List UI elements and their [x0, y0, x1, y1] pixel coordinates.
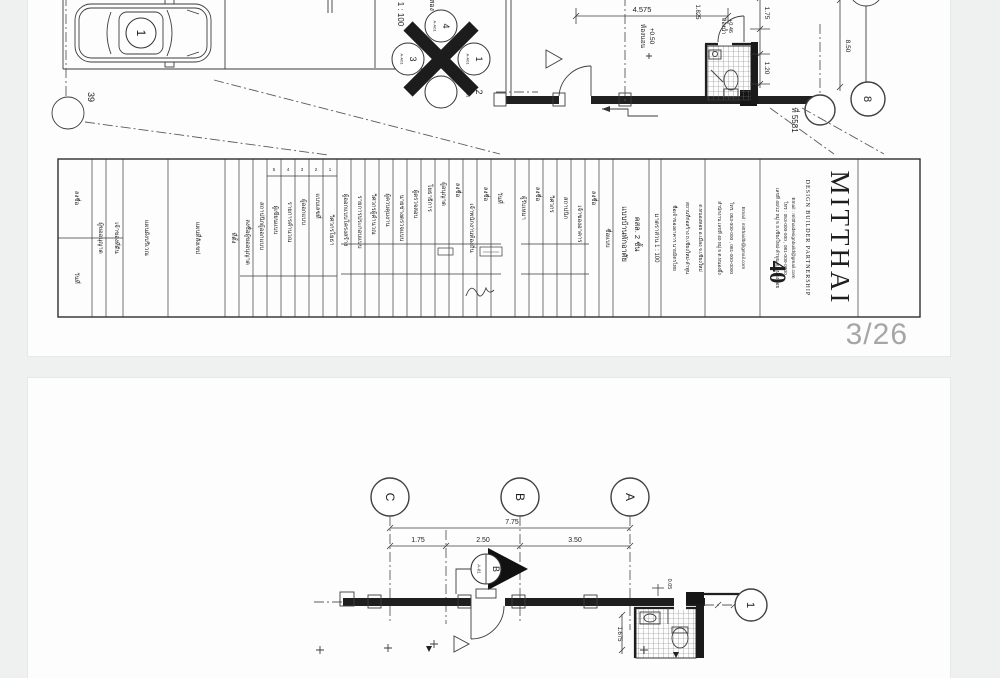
titleblock-column-label: ลงชื่อ: [534, 187, 542, 202]
grid-bubbles: 8 ที่ 5581: [770, 0, 885, 154]
bath-level: +0.46: [727, 19, 733, 33]
document-page-1[interactable]: 1 39 1 : 100 แปลนพื้นชั้นสอง 4: [28, 0, 950, 356]
floor-plan-upper: 4.575 ห้องนอน +0.50: [494, 0, 885, 154]
grid-bubble-c: C: [383, 493, 397, 502]
bath-label: ห้องน้ำ: [720, 18, 728, 34]
dim-seg3: 3.50: [568, 537, 582, 544]
titleblock-column-label: วิศวกร: [548, 195, 555, 214]
titleblock-column-label: นายช่างตรวจแบบ: [398, 195, 405, 242]
car-top-view: 1: [75, 0, 211, 67]
titleblock-column-label: ผู้ออกแบบโครงสร้าง: [342, 194, 350, 246]
grid-bubble-1: 1: [744, 602, 756, 608]
titleblock-column-label: ผู้รับเหมา: [520, 196, 527, 220]
titleblock-column-label: แผนที่สังเขป: [194, 222, 202, 254]
titleblock-column-label: ผู้ออกแบบ: [300, 199, 307, 225]
dim-right-2: 1.20: [763, 62, 770, 75]
compass-label-1: 1: [474, 56, 484, 61]
titleblock-column-label: รายการประกอบแบบ: [356, 195, 363, 248]
titleblock-column-label: วันที่: [496, 192, 504, 203]
titleblock-column-label: ลงชื่อผู้ขออนุญาต: [244, 219, 252, 265]
section-marker: A-01 B: [456, 548, 528, 594]
titleblock-column-label: เจ้าของอาคาร: [576, 205, 583, 243]
titleblock-column-label: โทร. 053-000-000 , 081-000-0000: [728, 202, 735, 274]
compass-ref: A-A01: [433, 20, 438, 32]
orientation-marker: 4 A-A01 1 A-A01 2 A-A01 3 A-A01: [392, 10, 490, 108]
compass-label-3: 3: [408, 56, 418, 61]
titleblock-column-label: วิศวกรโยธา: [328, 214, 336, 246]
titleblock-column-label: ชื่อเจ้าของอาคาร นายมิตรไทย: [671, 205, 678, 271]
titleblock-column-label: วันที่: [73, 272, 81, 283]
floor-plan-sheet-drawing: 1 39 1 : 100 แปลนพื้นชั้นสอง 4: [28, 0, 950, 356]
compass-ref: A-A01: [466, 53, 471, 65]
titleblock-column-label: แบบบ้านพักอาศัย: [620, 206, 629, 262]
mitthai-address: เลขที่ 40/12 หมู่ 5 ถ.เชียงใหม่-ลำพูน ต.…: [774, 188, 781, 288]
floor-plan-lower: 1.675 0.05 1: [314, 579, 767, 658]
dim-seg2: 2.50: [476, 537, 490, 544]
scale-note: 1 : 100: [396, 2, 405, 27]
titleblock-column-label: รายการคำนวณ: [286, 202, 293, 243]
titleblock-header-number: 3: [301, 167, 304, 172]
dim-total: 7.75: [505, 519, 519, 526]
titleblock-column-label: วิศวกรผู้คำนวณ: [370, 193, 377, 235]
titleblock-column-label: ผู้ขออนุญาต: [97, 222, 104, 253]
titleblock-column-label: แผนผังบริเวณ: [143, 220, 150, 256]
titleblock-column-label: ลงชื่อ: [482, 187, 490, 202]
document-viewer[interactable]: 1 39 1 : 100 แปลนพื้นชั้นสอง 4: [0, 0, 1000, 656]
compass-label-4: 4: [441, 23, 451, 28]
mitthai-subtitle: DESIGN BUILDER PARTNERSHIP: [804, 180, 810, 296]
titleblock-header-number: 5: [273, 167, 276, 172]
cut-sheet-title: แปลนพื้นชั้นสอง: [428, 0, 439, 11]
titleblock-column-label: ผู้ตรวจสอบ: [412, 190, 419, 219]
room-label: ห้องนอน: [639, 24, 647, 49]
grid-bubble-a: A: [623, 493, 637, 501]
dimension-top: 4.575: [573, 5, 731, 24]
titleblock-column-label: เจ้าพนักงานท้องถิ่น: [468, 203, 476, 252]
document-page-2[interactable]: C B A 7.75 1.75: [28, 378, 950, 678]
dim-left-bath: 1.675: [616, 626, 622, 642]
dim-inner: 1.825: [694, 4, 700, 20]
dimension-strings: 7.75 1.75 2.50 3.50: [387, 519, 633, 549]
room-level: +0.50: [648, 28, 655, 45]
dim-small: 0.05: [666, 579, 672, 590]
titleblock-column-label: สถาปนิกผู้ออกแบบ: [258, 202, 265, 250]
titleblock-column-label: มาตราส่วน 1 : 100: [653, 214, 660, 264]
titleblock-column-label: สถานที่ก่อสร้าง ถ.เชียงใหม่-ลำพูน: [684, 202, 691, 275]
floor-plan-sheet-drawing-2: C B A 7.75 1.75: [28, 378, 950, 678]
titleblock-column-label: ต.หนองหอย อ.เมือง จ.เชียงใหม่: [697, 204, 704, 271]
titleblock-header-number: 1: [329, 167, 332, 172]
parking-bay: [63, 0, 430, 96]
titleblock-column-label: ผู้เขียนแบบ: [272, 206, 280, 235]
stall-number: 1: [134, 30, 148, 37]
dim-top-value: 4.575: [633, 5, 652, 14]
titleblock-column-label: โยธาธิการ: [426, 184, 434, 212]
titleblock-column-label: ผู้ควบคุมงาน: [384, 193, 391, 226]
section-sheet-ref: A-01: [477, 564, 482, 574]
titleblock-column-label: ที่ตั้ง: [230, 233, 240, 244]
mitthai-phone: โทร : 053-000-000 , 081-000-0000: [782, 201, 789, 275]
title-block: ลงชื่อวันที่ผู้ขออนุญาตเจ้าของที่ดินแผนผ…: [58, 159, 920, 317]
dim-right-1: 1.75: [763, 7, 770, 20]
section-letter: B: [491, 566, 501, 572]
titleblock-column-label: ลงชื่อ: [590, 191, 598, 206]
titleblock-column-label: ผู้อนุญาต: [440, 182, 447, 206]
mitthai-logo-block: 40 เลขที่ 40/12 หมู่ 5 ถ.เชียงใหม่-ลำพูน…: [765, 171, 855, 306]
compass-ref: A-A01: [466, 86, 471, 98]
titleblock-header-number: 4: [287, 167, 290, 172]
titleblock-column-label: สำนักงาน เลขที่ 40 หมู่ 5 ต.หนองผึ้ง: [716, 201, 724, 274]
grid-line-bubbles: C B A: [371, 478, 649, 630]
compass-label-2: 2: [474, 89, 484, 94]
titleblock-column-label: ลงชื่อ: [73, 191, 81, 206]
titleblock-column-label: Email : mitthaidb@gmail.com: [740, 207, 746, 269]
compass-ref: A-A01: [400, 53, 405, 65]
titleblock-column-label: เจ้าของที่ดิน: [113, 222, 121, 254]
titleblock-column-label: สถาปนิก: [562, 197, 569, 220]
grid-bubble-b: B: [513, 493, 527, 501]
page-indicator: 3/26: [846, 318, 908, 352]
titleblock-header-number: 2: [315, 167, 318, 172]
titleblock-column-label: ชื่อแบบ: [604, 228, 612, 247]
titleblock-column-label: ลงชื่อ: [454, 183, 462, 198]
dim-right-3: 8.50: [844, 40, 851, 53]
grid-bubble-8: 8: [861, 96, 873, 102]
mitthai-email: Email : mitthaidesignbuild@gmail.com: [790, 197, 796, 278]
mitthai-name: MITTHAI: [825, 171, 855, 306]
dim-seg1: 1.75: [411, 537, 425, 544]
detail-bubble-label: 39: [86, 92, 96, 102]
titleblock-column-label: คสล. 2 ชั้น: [633, 217, 643, 252]
titleblock-column-label: แบบเลขที่: [314, 193, 322, 218]
